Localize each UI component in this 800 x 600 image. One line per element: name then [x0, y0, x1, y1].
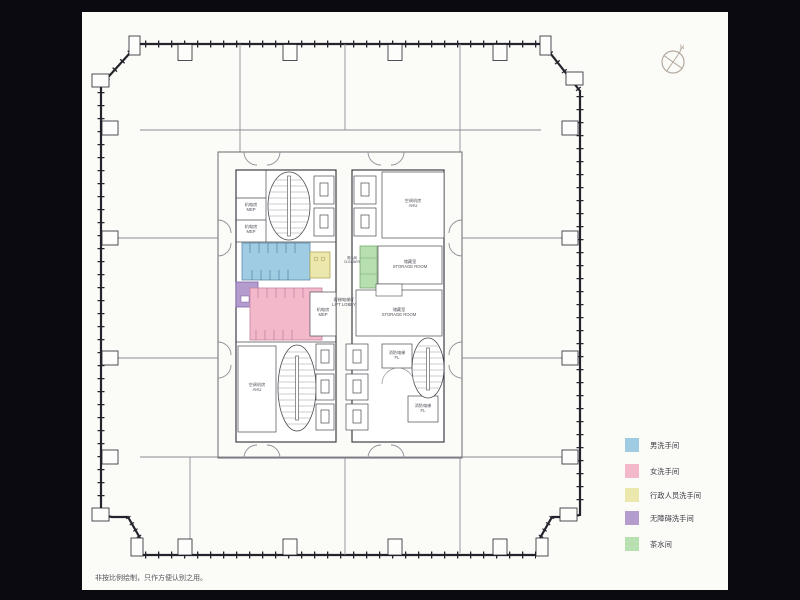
room-label-mep-upper-a: 机电房MEP — [245, 201, 258, 212]
legend-swatch — [625, 488, 639, 502]
compass-north-label: N — [680, 45, 684, 51]
legend-label: 男洗手间 — [650, 441, 679, 450]
elevator-shafts-southwest — [316, 344, 334, 430]
legend-swatch — [625, 537, 639, 551]
scissor-stair-southeast — [412, 338, 444, 398]
legend-item: 无障碍洗手间 — [625, 511, 694, 525]
scissor-stair-northwest — [268, 172, 310, 240]
floor-plan-canvas: 机电房MEP 机电房MEP 空调机房AHU — [0, 0, 800, 600]
legend-label: 无障碍洗手间 — [650, 514, 694, 523]
legend-item: 行政人员洗手间 — [625, 488, 701, 502]
legend-label: 茶水间 — [650, 540, 672, 549]
room-executive-restroom — [310, 252, 330, 278]
room-label-mep-upper-b: 机电房MEP — [245, 223, 258, 234]
wc-fixture — [241, 296, 249, 302]
slide: 机电房MEP 机电房MEP 空调机房AHU — [0, 0, 800, 600]
legend-swatch — [625, 464, 639, 478]
scale-note: 非按比例绘制，只作方便认别之用。 — [95, 573, 207, 582]
storage-vestibule — [376, 284, 402, 296]
legend-label: 行政人员洗手间 — [650, 491, 701, 500]
room-label-mep-mid: 机电房MEP — [317, 306, 330, 317]
legend-swatch — [625, 438, 639, 452]
legend-swatch — [625, 511, 639, 525]
legend-item: 女洗手间 — [625, 464, 679, 478]
scissor-stair-southwest — [278, 345, 316, 431]
legend-label: 女洗手间 — [650, 467, 679, 476]
room-label-lift-lobby: 客梯电梯厅LIFT LOBBY — [332, 296, 356, 307]
room-pantry — [360, 246, 377, 288]
room-mens-restroom — [242, 243, 310, 280]
legend-item: 男洗手间 — [625, 438, 679, 452]
elevator-shafts-southeast — [346, 344, 368, 430]
